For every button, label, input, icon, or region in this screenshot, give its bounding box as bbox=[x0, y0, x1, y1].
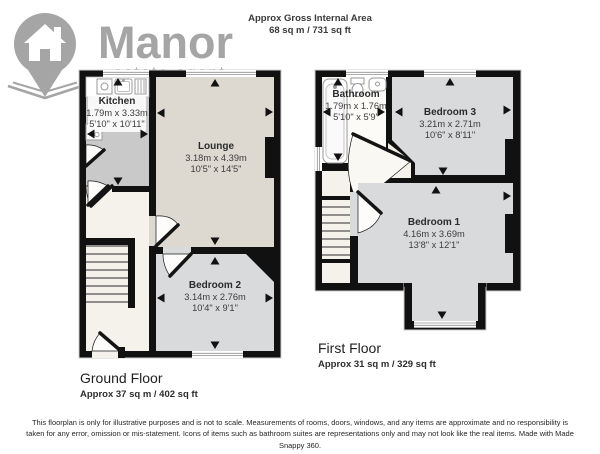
kitchen-name: Kitchen bbox=[99, 96, 136, 107]
oven-icon bbox=[97, 79, 112, 94]
bedroom2-dim-metric: 3.14m x 2.76m bbox=[184, 292, 246, 302]
bedroom2-dim-imperial: 10'4" x 9'1" bbox=[192, 303, 238, 313]
lounge-dim-metric: 3.18m x 4.39m bbox=[185, 153, 247, 163]
bedroom3-chimney-breast bbox=[505, 139, 513, 176]
first-floor-plan: Bathroom 1.79m x 1.76m 5'10" x 5'9" bbox=[315, 70, 521, 330]
ground-floor-plan: Kitchen 1.79m x 3.33m 5'10" x 10'11" bbox=[79, 70, 281, 358]
bedroom3-dim-imperial: 10'6" x 8'11" bbox=[425, 130, 475, 140]
bedroom1-name: Bedroom 1 bbox=[408, 217, 461, 228]
bedroom3-window bbox=[424, 70, 476, 77]
bay-window bbox=[414, 321, 476, 328]
lounge-dim-imperial: 10'5" x 14'5" bbox=[191, 164, 242, 174]
ground-floor-caption: Ground Floor Approx 37 sq m / 402 sq ft bbox=[80, 370, 198, 400]
room-lounge: Lounge 3.18m x 4.39m 10'5" x 14'5" bbox=[149, 77, 274, 247]
room-bedroom1: Bedroom 1 4.16m x 3.69m 13'8" x 12'1" bbox=[350, 183, 513, 321]
bedroom1-floor bbox=[358, 183, 513, 321]
area-header-label: Approx Gross Internal Area bbox=[205, 13, 415, 25]
kitchen-dim-imperial: 5'10" x 10'11" bbox=[89, 119, 144, 129]
bathroom-window bbox=[346, 70, 388, 77]
gross-internal-area-header: Approx Gross Internal Area 68 sq m / 731… bbox=[205, 13, 415, 37]
bedroom1-dim-metric: 4.16m x 3.69m bbox=[403, 229, 465, 239]
room-kitchen: Kitchen 1.79m x 3.33m 5'10" x 10'11" bbox=[86, 77, 149, 186]
bedroom3-dim-metric: 3.21m x 2.71m bbox=[419, 119, 481, 129]
bathroom-name: Bathroom bbox=[332, 89, 379, 100]
kitchen-dim-metric: 1.79m x 3.33m bbox=[86, 108, 148, 118]
lounge-name: Lounge bbox=[198, 141, 235, 152]
ground-floor-area: Approx 37 sq m / 402 sq ft bbox=[80, 389, 198, 400]
first-floor-area: Approx 31 sq m / 329 sq ft bbox=[318, 359, 436, 370]
lounge-window bbox=[186, 70, 256, 77]
area-header-value: 68 sq m / 731 sq ft bbox=[205, 25, 415, 37]
bedroom2-name: Bedroom 2 bbox=[189, 280, 242, 291]
bedroom1-chimney-breast bbox=[505, 214, 513, 253]
disclaimer-text: This floorplan is only for illustrative … bbox=[25, 417, 575, 451]
bedroom1-dim-imperial: 13'8" x 12'1" bbox=[409, 240, 460, 250]
house-pin-icon bbox=[8, 13, 82, 98]
ground-floor-title: Ground Floor bbox=[80, 370, 198, 386]
floorplan-page: Manor estate agent bbox=[0, 0, 600, 454]
kitchen-window bbox=[103, 70, 149, 77]
drainer-icon bbox=[135, 79, 146, 94]
first-floor-caption: First Floor Approx 31 sq m / 329 sq ft bbox=[318, 340, 436, 370]
bedroom2-window bbox=[192, 351, 243, 358]
first-floor-title: First Floor bbox=[318, 340, 436, 356]
lounge-chimney-breast bbox=[265, 137, 274, 178]
stairs bbox=[86, 238, 135, 308]
landing-window bbox=[315, 147, 322, 171]
bathroom-dim-imperial: 5'10" x 5'9" bbox=[333, 112, 379, 122]
bedroom3-name: Bedroom 3 bbox=[424, 107, 477, 118]
